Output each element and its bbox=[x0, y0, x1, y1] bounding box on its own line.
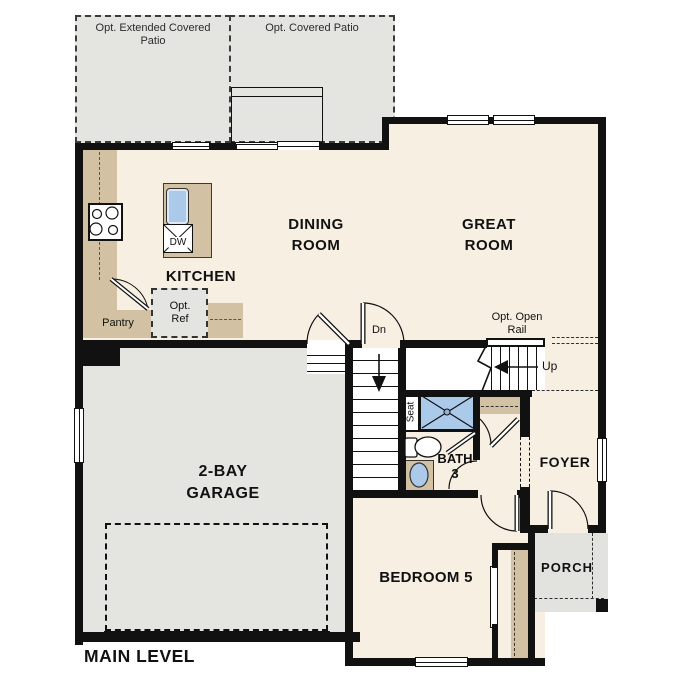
wall bbox=[210, 143, 236, 150]
shower bbox=[418, 392, 477, 432]
wall bbox=[75, 463, 83, 645]
bedroom5-label: BEDROOM 5 bbox=[379, 569, 473, 586]
wall bbox=[492, 550, 498, 568]
stairwell-void bbox=[406, 348, 483, 390]
stairs-up-flight bbox=[483, 347, 545, 390]
wall bbox=[345, 658, 415, 666]
wall bbox=[382, 117, 389, 150]
shower-seat-label: Seat bbox=[406, 402, 417, 423]
bath3-label: BATH 3 bbox=[437, 451, 472, 481]
dining-room-label: DINING ROOM bbox=[288, 214, 344, 256]
wall bbox=[398, 390, 532, 397]
wall bbox=[400, 340, 487, 348]
foyer-label: FOYER bbox=[540, 454, 591, 470]
great-room-window-right bbox=[493, 115, 535, 125]
cased-opening-dash-right bbox=[529, 437, 530, 487]
cooktop bbox=[88, 203, 123, 241]
cased-opening-dash-left bbox=[520, 437, 521, 487]
stair-rail-bar bbox=[486, 338, 545, 347]
wall bbox=[75, 143, 172, 150]
bedroom-closet-door bbox=[490, 566, 498, 628]
wall bbox=[535, 117, 606, 124]
stair-overhead-dash bbox=[532, 390, 598, 391]
kitchen-label: KITCHEN bbox=[166, 268, 236, 285]
kitchen-counter-bottom bbox=[208, 303, 243, 338]
wall bbox=[528, 533, 535, 666]
slider-panel-right bbox=[277, 141, 320, 147]
wall bbox=[75, 632, 360, 642]
garage-entry-steps bbox=[307, 348, 350, 374]
main-level-title: MAIN LEVEL bbox=[84, 646, 195, 667]
wall bbox=[492, 624, 498, 658]
opt-rail-dash-1 bbox=[552, 337, 598, 338]
covered-patio-label: Opt. Covered Patio bbox=[265, 22, 359, 35]
wall bbox=[492, 543, 528, 550]
wall bbox=[520, 487, 530, 533]
stairs-down-label: Dn bbox=[372, 324, 386, 337]
wall bbox=[83, 348, 120, 366]
garage-door-dashed bbox=[105, 523, 328, 631]
kitchen-window bbox=[172, 142, 210, 150]
stairs-up-label: Up bbox=[542, 359, 557, 373]
stairs-down-flight bbox=[353, 348, 398, 490]
wall bbox=[473, 390, 480, 460]
floor-plan: Opt. Extended Covered Patio Opt. Covered… bbox=[0, 0, 687, 687]
bath-vanity bbox=[404, 460, 434, 491]
extended-patio-label: Opt. Extended Covered Patio bbox=[96, 22, 211, 47]
porch-post bbox=[596, 599, 608, 612]
wall bbox=[398, 348, 406, 497]
sliding-door-outline bbox=[231, 87, 323, 143]
garage-window bbox=[74, 408, 84, 463]
bedroom-window bbox=[415, 657, 468, 667]
opt-ref-label: Opt. Ref bbox=[170, 300, 191, 326]
wall bbox=[530, 525, 548, 533]
wall bbox=[83, 340, 307, 348]
great-room-window-left bbox=[447, 115, 489, 125]
wall bbox=[345, 340, 353, 666]
slider-panel-left bbox=[236, 144, 278, 150]
wall bbox=[598, 117, 606, 438]
porch-dashed-edge-bottom bbox=[534, 598, 604, 599]
great-room-label: GREAT ROOM bbox=[462, 214, 516, 256]
wall bbox=[75, 143, 83, 408]
porch-label: PORCH bbox=[541, 561, 593, 576]
opt-open-rail-label: Opt. Open Rail bbox=[492, 311, 543, 337]
wall bbox=[353, 490, 478, 498]
pantry-counter-side bbox=[83, 283, 117, 312]
dishwasher-label: DW bbox=[169, 237, 188, 249]
wall bbox=[319, 143, 388, 150]
opt-rail-dash-2 bbox=[552, 343, 598, 344]
foyer-window bbox=[597, 438, 607, 482]
bedroom-closet-shelf bbox=[511, 550, 528, 658]
wall bbox=[588, 525, 606, 533]
island-sink bbox=[166, 188, 189, 225]
wall bbox=[520, 397, 530, 437]
pantry-label: Pantry bbox=[102, 317, 134, 330]
sliding-door-line bbox=[232, 96, 322, 97]
garage-label: 2-BAY GARAGE bbox=[186, 461, 259, 505]
wall bbox=[382, 117, 447, 124]
understair-closet-shelf bbox=[480, 397, 520, 414]
